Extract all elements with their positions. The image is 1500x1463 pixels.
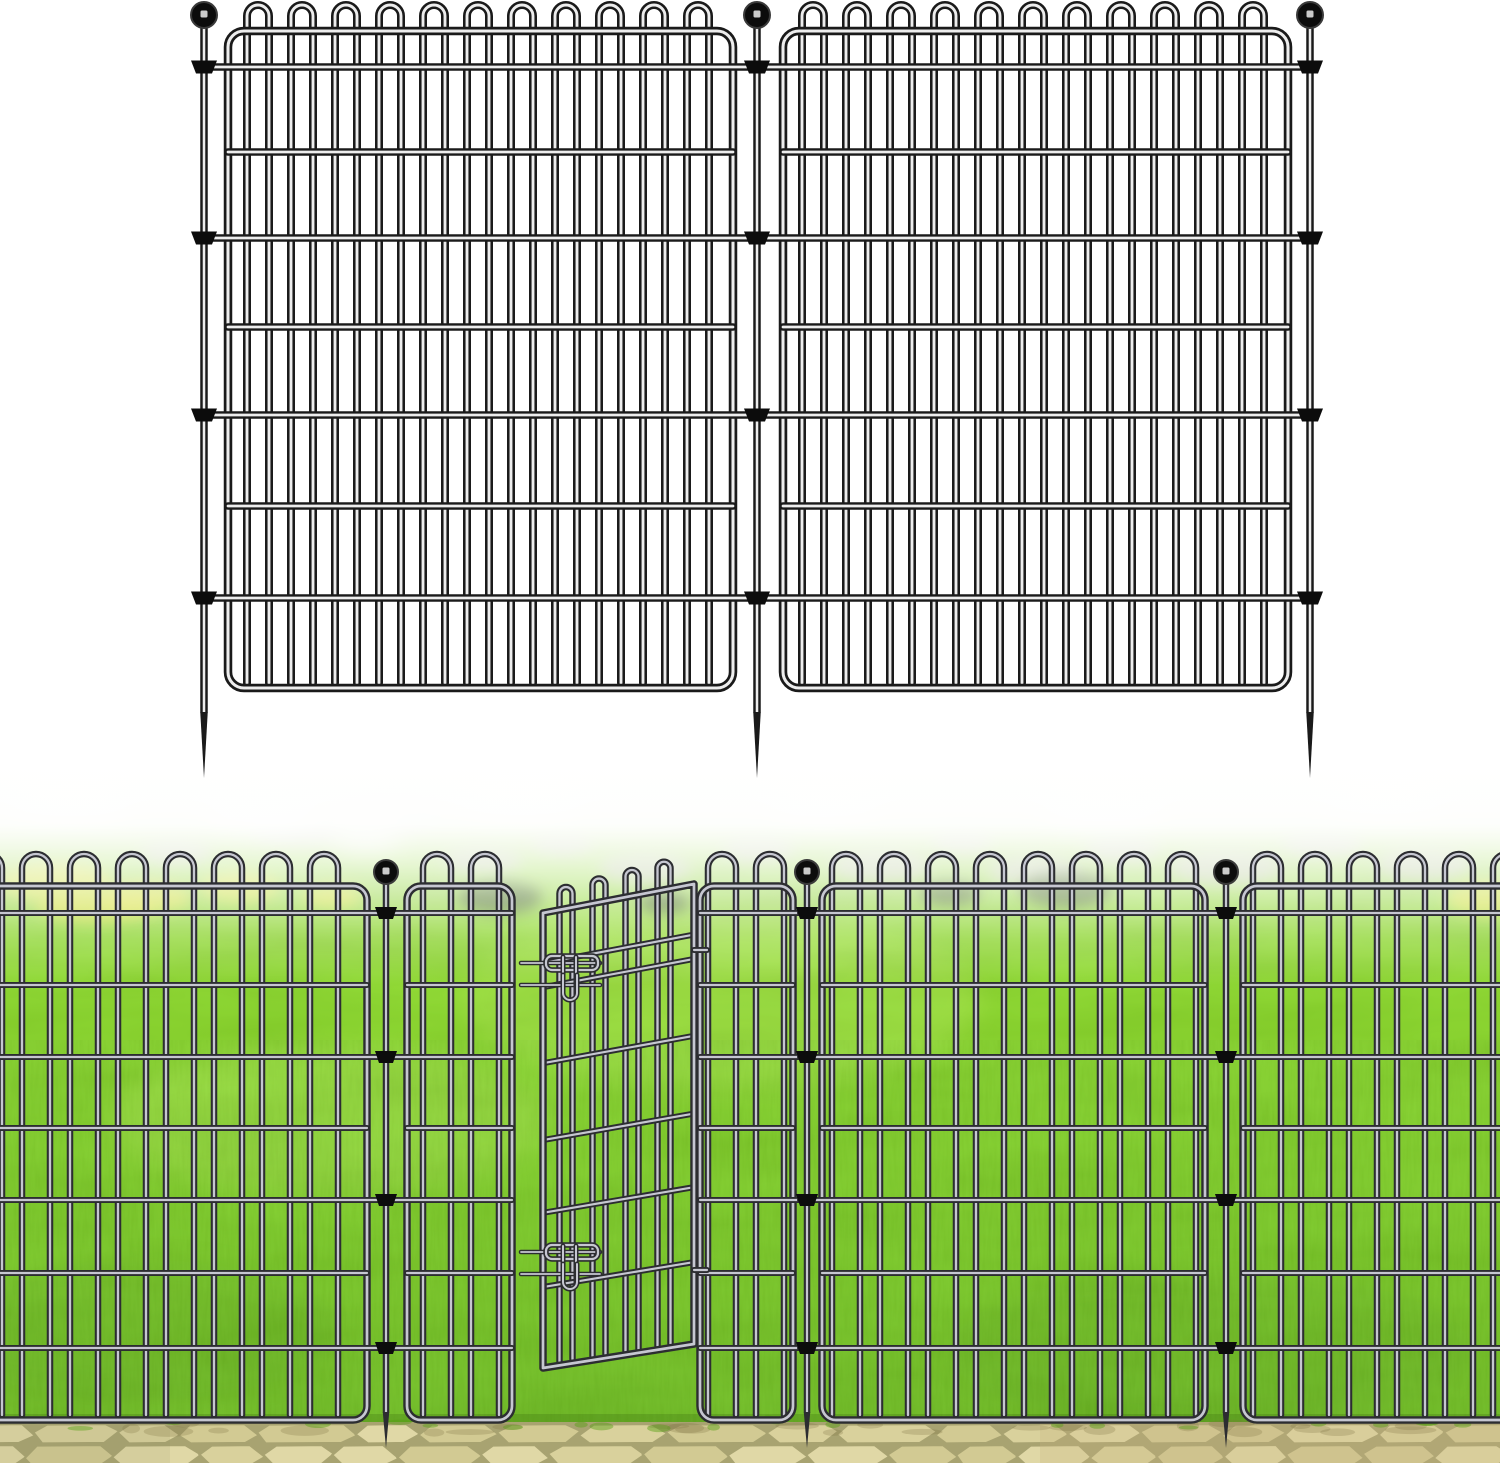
garden-scene bbox=[0, 755, 1500, 1463]
stone-pavement bbox=[0, 1422, 1500, 1463]
stake-finial bbox=[374, 860, 398, 884]
paver-stone bbox=[397, 1445, 482, 1463]
stake-finial bbox=[744, 2, 770, 28]
paver-stone bbox=[935, 1424, 1003, 1444]
fence-diagram bbox=[0, 0, 1500, 778]
product-image bbox=[0, 0, 1500, 1463]
paver-stone bbox=[887, 1445, 958, 1463]
paver-stone bbox=[356, 1424, 421, 1444]
loop-wires bbox=[0, 854, 338, 1415]
garden-fence-rendering bbox=[0, 0, 1500, 1463]
stake-finial bbox=[795, 860, 819, 884]
paver-stone bbox=[806, 1445, 889, 1463]
paver-stone bbox=[548, 1445, 645, 1463]
stake-finial bbox=[191, 2, 217, 28]
fog-overlay bbox=[0, 755, 1500, 985]
stake-finial bbox=[1297, 2, 1323, 28]
paver-stone bbox=[643, 1445, 730, 1463]
paver-stone bbox=[263, 1445, 334, 1463]
paver-stone bbox=[728, 1445, 808, 1463]
paver-stone bbox=[480, 1445, 549, 1463]
stake-finial bbox=[1214, 860, 1238, 884]
